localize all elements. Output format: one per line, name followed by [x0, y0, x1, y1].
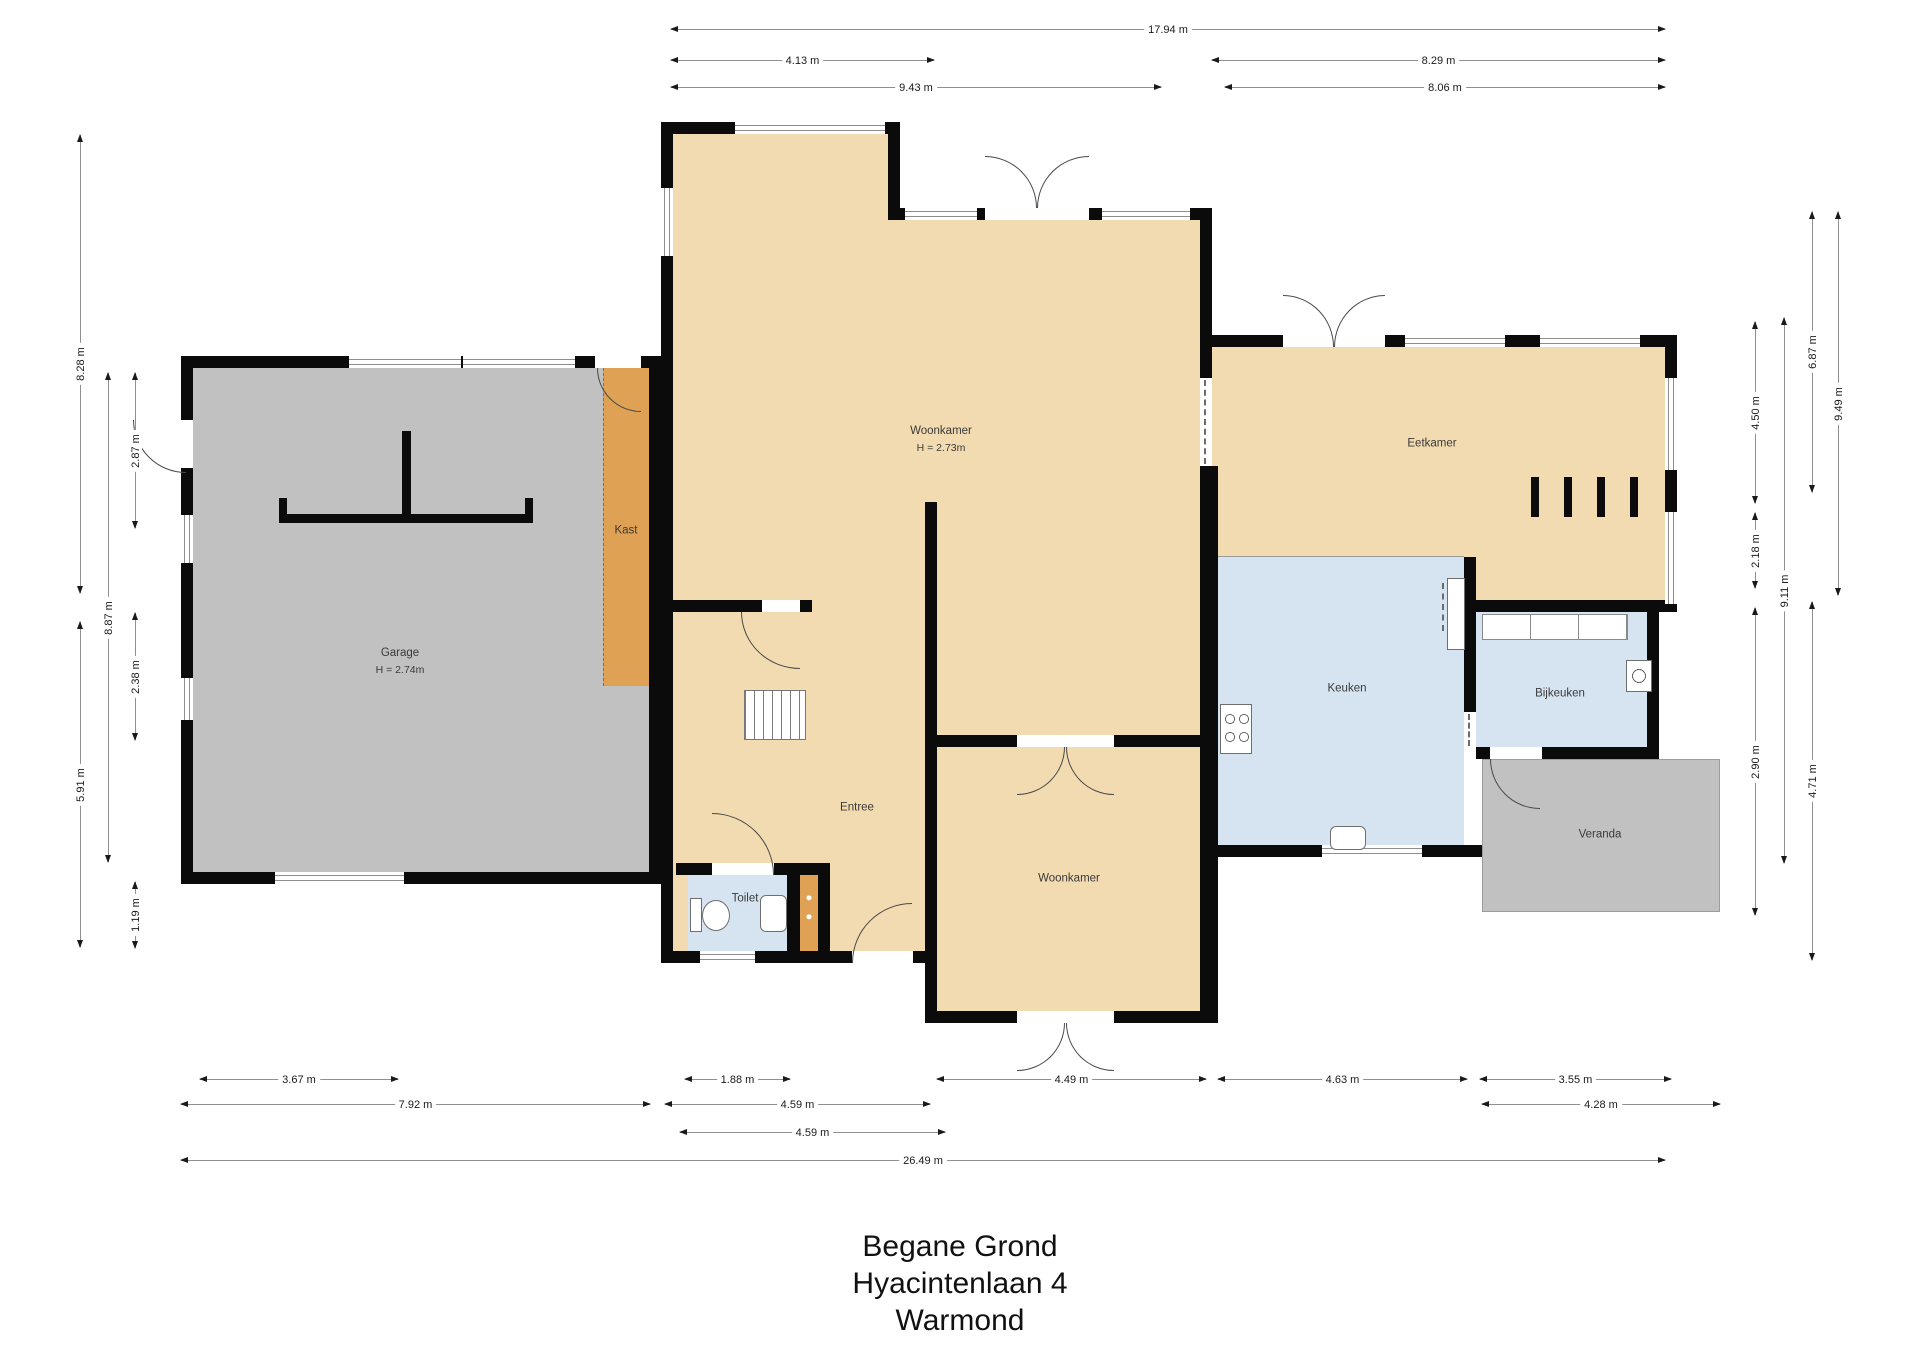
wall: [181, 872, 661, 884]
dimension-line: 4.49 m: [937, 1079, 1206, 1080]
wall: [787, 863, 800, 951]
room-label-toilet: Toilet: [732, 891, 759, 908]
window: [661, 188, 673, 256]
dimension-label: 4.63 m: [1322, 1074, 1364, 1086]
dimension-label: 6.87 m: [1807, 331, 1819, 373]
door-arc: [1334, 295, 1385, 347]
dimension-label: 5.91 m: [75, 764, 87, 806]
window: [349, 356, 461, 368]
window: [1665, 378, 1677, 470]
door-opening: [1017, 735, 1114, 747]
dimension-line: 4.59 m: [665, 1104, 930, 1105]
toilet-sink-icon: [760, 895, 787, 932]
window: [905, 208, 977, 220]
dimension-label: 8.87 m: [103, 597, 115, 639]
wall: [1464, 557, 1476, 712]
window: [463, 356, 575, 368]
title-address: Hyacintenlaan 4: [0, 1265, 1920, 1302]
dimension-label: 2.38 m: [130, 656, 142, 698]
toilet-bowl-icon: [702, 900, 730, 931]
dimension-label: 4.49 m: [1051, 1074, 1093, 1086]
dimension-line: 9.43 m: [671, 87, 1161, 88]
dimension-label: 4.71 m: [1807, 760, 1819, 802]
room-label-woonkamer: WoonkamerH = 2.73m: [910, 423, 972, 457]
dimension-label: 7.92 m: [395, 1099, 437, 1111]
window: [181, 515, 193, 563]
dimension-line: 2.87 m: [135, 373, 136, 528]
dimension-line: 4.59 m: [680, 1132, 945, 1133]
title-city: Warmond: [0, 1302, 1920, 1339]
dimension-line: 2.38 m: [135, 613, 136, 740]
dimension-line: 8.28 m: [80, 135, 81, 593]
door-opening: [762, 600, 800, 612]
dimension-label: 4.59 m: [792, 1127, 834, 1139]
wall: [673, 600, 762, 612]
title-block: Begane Grond Hyacintenlaan 4 Warmond: [0, 1228, 1920, 1339]
door-arc: [1017, 1023, 1065, 1071]
dimension-label: 4.28 m: [1580, 1099, 1622, 1111]
dimension-label: 26.49 m: [899, 1155, 947, 1167]
dimension-label: 3.67 m: [278, 1074, 320, 1086]
dimension-line: 6.87 m: [1812, 212, 1813, 492]
sliding-door: [1204, 380, 1206, 464]
room-label-eetkamer: Eetkamer: [1407, 436, 1456, 453]
wall: [888, 122, 900, 220]
dimension-line: 3.67 m: [200, 1079, 398, 1080]
room-label-entree: Entree: [840, 800, 874, 817]
wall: [649, 356, 661, 884]
wall-pillar: [1597, 477, 1605, 517]
room-label-woonkamer-2: Woonkamer: [1038, 871, 1100, 888]
dimension-line: 17.94 m: [671, 29, 1665, 30]
dimension-label: 8.06 m: [1424, 82, 1466, 94]
door-opening: [595, 356, 641, 368]
dimension-label: 17.94 m: [1144, 24, 1192, 36]
window: [1540, 335, 1640, 347]
dimension-line: 4.71 m: [1812, 602, 1813, 960]
floor-woonkamer-left: [673, 134, 900, 608]
door-arc: [1037, 156, 1089, 208]
dimension-label: 9.49 m: [1833, 383, 1845, 425]
dimension-line: 3.55 m: [1480, 1079, 1671, 1080]
dimension-line: 8.87 m: [108, 373, 109, 862]
door-opening: [985, 208, 1089, 220]
door-arc: [1283, 295, 1334, 347]
room-label-kast: Kast: [614, 523, 637, 540]
window: [1102, 208, 1190, 220]
dimension-label: 4.59 m: [777, 1099, 819, 1111]
room-label-keuken: Keuken: [1327, 681, 1366, 698]
dimension-line: 1.19 m: [135, 882, 136, 948]
dimension-label: 9.43 m: [895, 82, 937, 94]
dimension-label: 2.90 m: [1750, 741, 1762, 783]
kitchen-sink-icon: [1330, 826, 1366, 850]
dimension-label: 8.29 m: [1418, 55, 1460, 67]
dimension-line: 1.88 m: [685, 1079, 790, 1080]
washer-icon: [1626, 660, 1652, 692]
door-opening: [1017, 1011, 1114, 1023]
dimension-label: 3.55 m: [1555, 1074, 1597, 1086]
wall: [1200, 208, 1212, 378]
window: [181, 678, 193, 720]
dimension-line: 4.63 m: [1218, 1079, 1467, 1080]
wall: [1476, 600, 1677, 612]
dimension-line: 8.06 m: [1225, 87, 1665, 88]
dimension-label: 2.18 m: [1750, 530, 1762, 572]
dimension-line: 9.49 m: [1838, 212, 1839, 595]
floorplan-canvas: GarageH = 2.74mKastWoonkamerH = 2.73mEet…: [0, 0, 1920, 1358]
door-arc: [985, 156, 1037, 208]
dimension-line: 5.91 m: [80, 622, 81, 947]
sliding-door: [1442, 583, 1444, 631]
window: [275, 872, 404, 884]
dimension-label: 9.11 m: [1779, 570, 1791, 611]
window: [700, 951, 755, 963]
dimension-line: 2.90 m: [1755, 608, 1756, 915]
floor-garage: [193, 368, 649, 872]
wall-pillar: [1531, 477, 1539, 517]
staircase: [744, 690, 806, 740]
stove-icon: [1220, 704, 1252, 754]
wall-pillar: [1564, 477, 1572, 517]
window: [735, 122, 885, 134]
toilet-tank-icon: [690, 898, 702, 932]
dimension-line: 26.49 m: [181, 1160, 1665, 1161]
fridge-icon: [1447, 578, 1465, 650]
garage-marker: [525, 498, 533, 514]
dimension-line: 4.13 m: [671, 60, 934, 61]
floor-keuken: [1218, 557, 1464, 845]
wall: [925, 502, 937, 747]
room-label-garage: GarageH = 2.74m: [376, 645, 425, 679]
dimension-label: 8.28 m: [75, 343, 87, 385]
hall-cabinet: [800, 875, 818, 951]
title-floor-name: Begane Grond: [0, 1228, 1920, 1265]
dimension-line: 2.18 m: [1755, 513, 1756, 588]
keuken-boundary-line: [1218, 556, 1464, 557]
wall: [925, 735, 937, 1023]
dimension-line: 7.92 m: [181, 1104, 650, 1105]
wall-pillar: [1630, 477, 1638, 517]
dimension-label: 1.19 m: [130, 894, 142, 936]
room-label-bijkeuken: Bijkeuken: [1535, 686, 1585, 703]
dimension-line: 4.50 m: [1755, 322, 1756, 503]
bijkeuken-counter: [1482, 614, 1628, 640]
sliding-door: [1468, 714, 1470, 746]
wall: [800, 600, 812, 612]
dimension-line: 4.28 m: [1482, 1104, 1720, 1105]
garage-marker: [402, 431, 411, 515]
room-label-veranda: Veranda: [1579, 827, 1622, 844]
door-arc: [1066, 1023, 1114, 1071]
garage-marker: [279, 498, 287, 514]
dimension-label: 1.88 m: [717, 1074, 759, 1086]
wall: [818, 863, 830, 951]
dimension-line: 9.11 m: [1784, 318, 1785, 863]
window: [1405, 335, 1505, 347]
garage-marker: [279, 514, 533, 523]
dimension-label: 4.50 m: [1750, 392, 1762, 434]
door-opening: [1490, 747, 1542, 759]
dimension-label: 2.87 m: [130, 430, 142, 472]
dimension-label: 4.13 m: [782, 55, 824, 67]
window: [1665, 512, 1677, 604]
dimension-line: 8.29 m: [1212, 60, 1665, 61]
